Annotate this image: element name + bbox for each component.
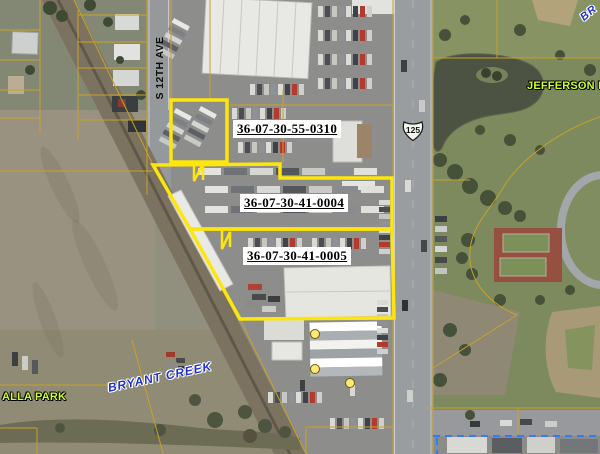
highway-shield-number: 125: [406, 125, 420, 135]
address-point: [311, 365, 320, 374]
map-canvas[interactable]: 125 36-07-30-55-0310 36-07-30-41-0004 36…: [0, 0, 600, 454]
aerial-imagery: 125: [0, 0, 600, 454]
address-point: [346, 379, 355, 388]
street-label-s-12th-ave: S 12TH AVE: [154, 35, 166, 101]
park-label-walla-park: ALLA PARK: [2, 391, 66, 403]
parcel-label-0310: 36-07-30-55-0310: [233, 120, 341, 138]
address-point: [311, 330, 320, 339]
parcel-label-0004: 36-07-30-41-0004: [240, 194, 348, 212]
park-label-jefferson-park: JEFFERSON PA: [527, 80, 600, 92]
parcel-label-0005: 36-07-30-41-0005: [243, 247, 351, 265]
